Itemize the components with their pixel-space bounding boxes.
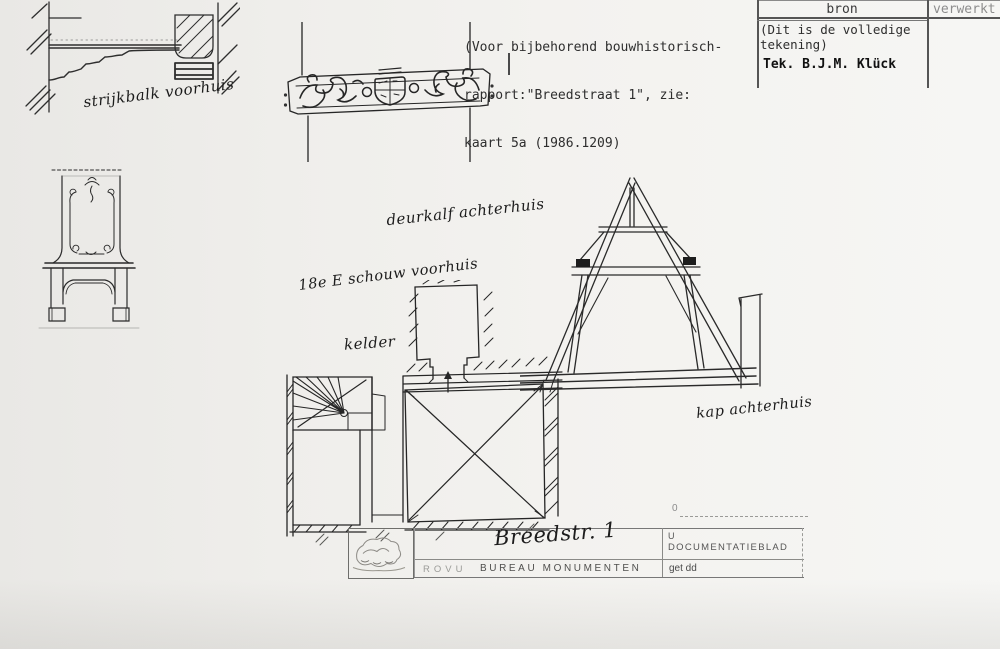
note-line-1: (Voor bijbehorend bouwhistorisch- <box>464 40 722 56</box>
drafter-credit: Tek. B.J.M. Klück <box>763 57 896 72</box>
org-label: ROVU <box>423 564 466 575</box>
verwerkt-header: verwerkt <box>933 2 996 17</box>
deurkalf-drawing <box>283 22 495 162</box>
note-line-3: kaart 5a (1986.1209) <box>464 136 722 152</box>
fireplace-drawing <box>36 158 142 332</box>
table-note-line-2: tekening) <box>760 37 828 52</box>
table-header-rule <box>757 17 1000 19</box>
source-table: bron verwerkt (Dit is de volledige teken… <box>757 0 1000 88</box>
table-column-rule <box>927 0 929 88</box>
scanned-drawing-sheet: (Voor bijbehorend bouwhistorisch- rappor… <box>0 0 1000 649</box>
city-seal-box <box>348 528 414 579</box>
doc-blad-label: DOCUMENTATIEBLAD <box>668 542 788 553</box>
typed-note: (Voor bijbehorend bouwhistorisch- rappor… <box>464 8 722 184</box>
get-dd-label: get dd <box>669 563 697 574</box>
scale-zero-label: 0 <box>672 503 678 514</box>
roof-truss-drawing <box>520 166 770 398</box>
bron-header: bron <box>757 2 927 17</box>
title-block-mid-rule <box>414 559 804 560</box>
title-block-left-rule <box>414 528 415 577</box>
doc-u-label: U <box>668 531 676 541</box>
table-top-rule <box>757 0 1000 1</box>
table-header-rule-2 <box>757 20 927 21</box>
title-block-bottom-rule <box>414 577 804 578</box>
bureau-label: BUREAU MONUMENTEN <box>480 563 641 574</box>
scale-line <box>680 516 808 517</box>
title-block-right-rule <box>802 528 803 577</box>
city-seal-sketch <box>349 529 411 576</box>
note-line-2: rapport:"Breedstraat 1", zie: <box>464 88 722 104</box>
paper-shading <box>0 579 1000 649</box>
stray-pen-mark <box>508 53 510 75</box>
title-block-divider <box>662 528 663 577</box>
table-note-line-1: (Dit is de volledige <box>760 22 911 37</box>
kap-label: kap achterhuis <box>695 394 813 422</box>
